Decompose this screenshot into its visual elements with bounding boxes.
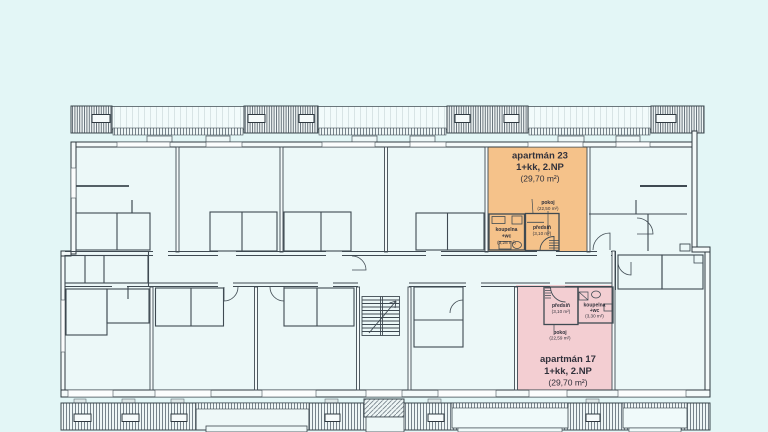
svg-text:koupelna: koupelna [496, 227, 518, 233]
svg-text:apartmán 23: apartmán 23 [512, 151, 568, 162]
svg-text:1+kk, 2.NP: 1+kk, 2.NP [516, 162, 564, 173]
svg-text:(29,70 m²): (29,70 m²) [548, 378, 587, 388]
svg-text:(3,10 m²): (3,10 m²) [533, 231, 552, 236]
svg-text:(29,70 m²): (29,70 m²) [520, 174, 559, 184]
svg-text:+wc: +wc [502, 234, 512, 240]
svg-text:(22,50 m²): (22,50 m²) [537, 206, 559, 211]
svg-text:(3,28 m²): (3,28 m²) [497, 240, 516, 245]
svg-text:1+kk, 2.NP: 1+kk, 2.NP [544, 366, 592, 377]
svg-text:apartmán 17: apartmán 17 [540, 354, 596, 365]
svg-text:(3,30 m²): (3,30 m²) [585, 314, 604, 319]
svg-text:(22,59 m²): (22,59 m²) [549, 336, 571, 341]
svg-text:(3,10 m²): (3,10 m²) [552, 309, 571, 314]
